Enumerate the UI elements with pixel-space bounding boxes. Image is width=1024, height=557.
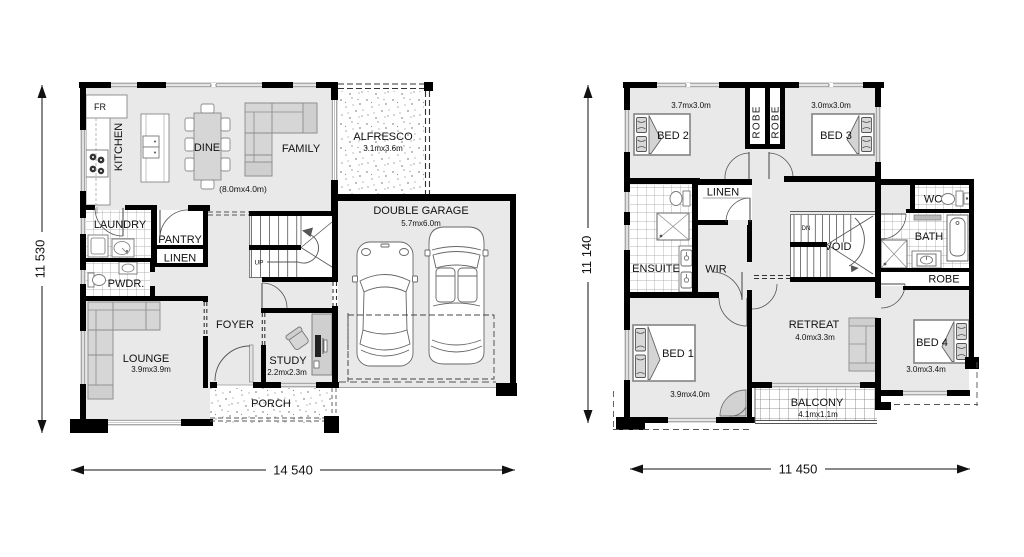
svg-text:4.0mx3.3m: 4.0mx3.3m <box>795 333 835 342</box>
svg-text:STUDY: STUDY <box>269 355 307 367</box>
svg-text:FAMILY: FAMILY <box>282 143 321 155</box>
svg-text:14 540: 14 540 <box>273 463 313 478</box>
svg-text:ALFRESCO: ALFRESCO <box>353 131 413 143</box>
svg-text:PORCH: PORCH <box>251 398 291 410</box>
svg-text:ENSUITE: ENSUITE <box>632 263 680 275</box>
svg-text:LOUNGE: LOUNGE <box>123 353 169 365</box>
svg-text:BALCONY: BALCONY <box>791 397 844 409</box>
svg-text:11 140: 11 140 <box>579 236 594 275</box>
svg-text:LINEN: LINEN <box>707 187 739 199</box>
svg-text:3.0mx3.0m: 3.0mx3.0m <box>811 101 851 110</box>
svg-text:WIR: WIR <box>705 264 726 276</box>
svg-text:FR: FR <box>94 102 106 112</box>
svg-text:DN: DN <box>802 226 811 232</box>
svg-text:BED 3: BED 3 <box>820 130 852 142</box>
svg-text:LAUNDRY: LAUNDRY <box>94 219 147 231</box>
svg-text:2.2mx2.3m: 2.2mx2.3m <box>267 368 307 377</box>
svg-text:WC: WC <box>924 194 942 206</box>
svg-text:DOUBLE GARAGE: DOUBLE GARAGE <box>373 205 468 217</box>
svg-text:4.1mx1.1m: 4.1mx1.1m <box>798 410 838 419</box>
svg-text:KITCHEN: KITCHEN <box>113 123 125 171</box>
svg-text:LINEN: LINEN <box>164 253 196 265</box>
svg-text:3.1mx3.6m: 3.1mx3.6m <box>363 144 403 153</box>
svg-text:ROBE: ROBE <box>752 105 763 138</box>
svg-text:RETREAT: RETREAT <box>789 319 840 331</box>
svg-text:BED 1: BED 1 <box>662 348 694 360</box>
svg-text:VOID: VOID <box>825 241 852 253</box>
svg-text:3.9mx3.9m: 3.9mx3.9m <box>131 365 171 374</box>
svg-text:3.9mx4.0m: 3.9mx4.0m <box>670 390 710 399</box>
svg-text:UP: UP <box>254 260 263 267</box>
svg-text:BED 4: BED 4 <box>916 337 948 349</box>
svg-text:ROBE: ROBE <box>928 274 959 286</box>
svg-text:3.0mx3.4m: 3.0mx3.4m <box>906 365 946 374</box>
svg-text:ROBE: ROBE <box>771 105 782 138</box>
svg-text:11 450: 11 450 <box>779 462 818 477</box>
svg-text:DINE: DINE <box>194 142 220 154</box>
svg-text:3.7mx3.0m: 3.7mx3.0m <box>671 101 711 110</box>
svg-text:BATH: BATH <box>915 231 944 243</box>
svg-text:PWDR.: PWDR. <box>108 278 145 290</box>
svg-text:5.7mx6.0m: 5.7mx6.0m <box>401 219 441 228</box>
svg-text:(8.0mx4.0m): (8.0mx4.0m) <box>219 184 267 194</box>
svg-text:PANTRY: PANTRY <box>158 234 202 246</box>
svg-text:FOYER: FOYER <box>216 319 254 331</box>
svg-text:BED 2: BED 2 <box>657 130 689 142</box>
svg-text:11 530: 11 530 <box>33 240 48 279</box>
